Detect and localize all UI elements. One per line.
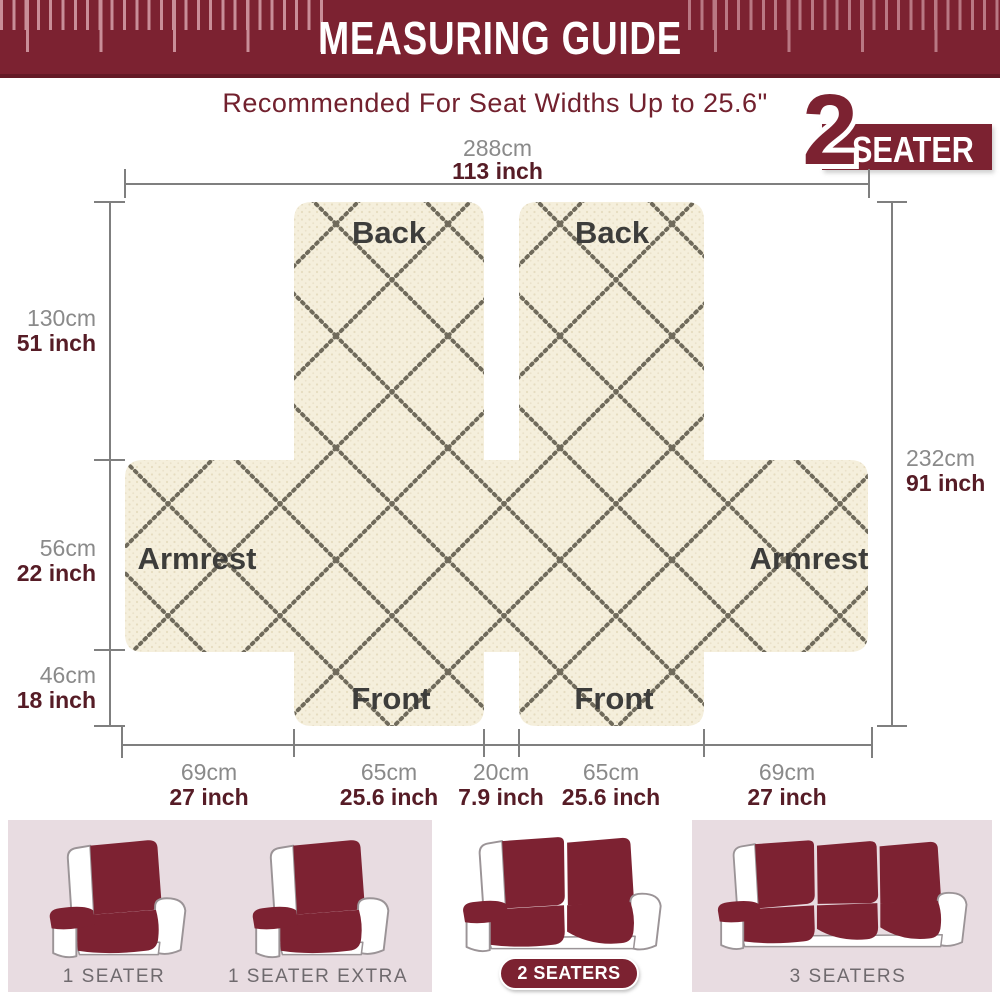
dimension-tick [293,729,295,757]
dimension-tick [483,729,485,757]
dimension-left-back: 130cm 51 inch [17,306,96,356]
measuring-guide-infographic: MEASURING GUIDE Recommended For Seat Wid… [0,0,1000,1000]
dimension-tick [94,201,125,203]
sofa-cover-shape [120,198,872,730]
dimension-tick [877,201,907,203]
dimension-bottom-armrest-right: 69cm 27 inch [747,760,826,810]
dimension-left-front: 46cm 18 inch [17,663,96,713]
dimension-line-right [891,202,893,726]
dimension-bottom-gap: 20cm 7.9 inch [458,760,544,810]
cover-label-back-right: Back [575,215,649,251]
dimension-tick [703,729,705,757]
dimension-line-bottom [122,744,872,746]
cover-label-back-left: Back [352,215,426,251]
dimension-bottom-seat-left: 65cm 25.6 inch [340,760,438,810]
dimension-tick [124,169,126,198]
dimension-bottom-armrest-left: 69cm 27 inch [169,760,248,810]
header-band: MEASURING GUIDE [0,0,1000,78]
dimension-tick [868,169,870,198]
dimension-tick [877,725,907,727]
variant-label-one-seater-extra: 1 SEATER EXTRA [228,966,408,988]
dimension-tick [121,727,123,758]
dimension-left-armrest: 56cm 22 inch [17,536,96,586]
dimension-right-total: 232cm 91 inch [906,446,985,496]
dimension-tick [94,459,125,461]
one-seater-illustration [30,836,200,962]
cover-label-armrest-right: Armrest [750,541,869,577]
dimension-tick [518,729,520,757]
dimension-tick [94,649,125,651]
cover-label-front-left: Front [351,681,430,717]
variant-label-one-seater: 1 SEATER [63,966,165,988]
dimension-tick [871,727,873,758]
dimension-line-top [125,183,870,185]
cover-label-armrest-left: Armrest [138,541,257,577]
dimension-bottom-seat-right: 65cm 25.6 inch [562,760,660,810]
cover-label-front-right: Front [574,681,653,717]
two-seater-illustration [448,834,680,958]
page-title: MEASURING GUIDE [0,10,1000,66]
variant-badge-two-seaters: 2 SEATERS [499,957,639,990]
one-seater-extra-illustration [233,836,403,962]
dimension-line-left [109,202,111,726]
variant-label-three-seaters: 3 SEATERS [790,966,907,988]
dimension-top-inch: 113 inch [125,159,870,184]
three-seater-illustration [702,836,982,954]
